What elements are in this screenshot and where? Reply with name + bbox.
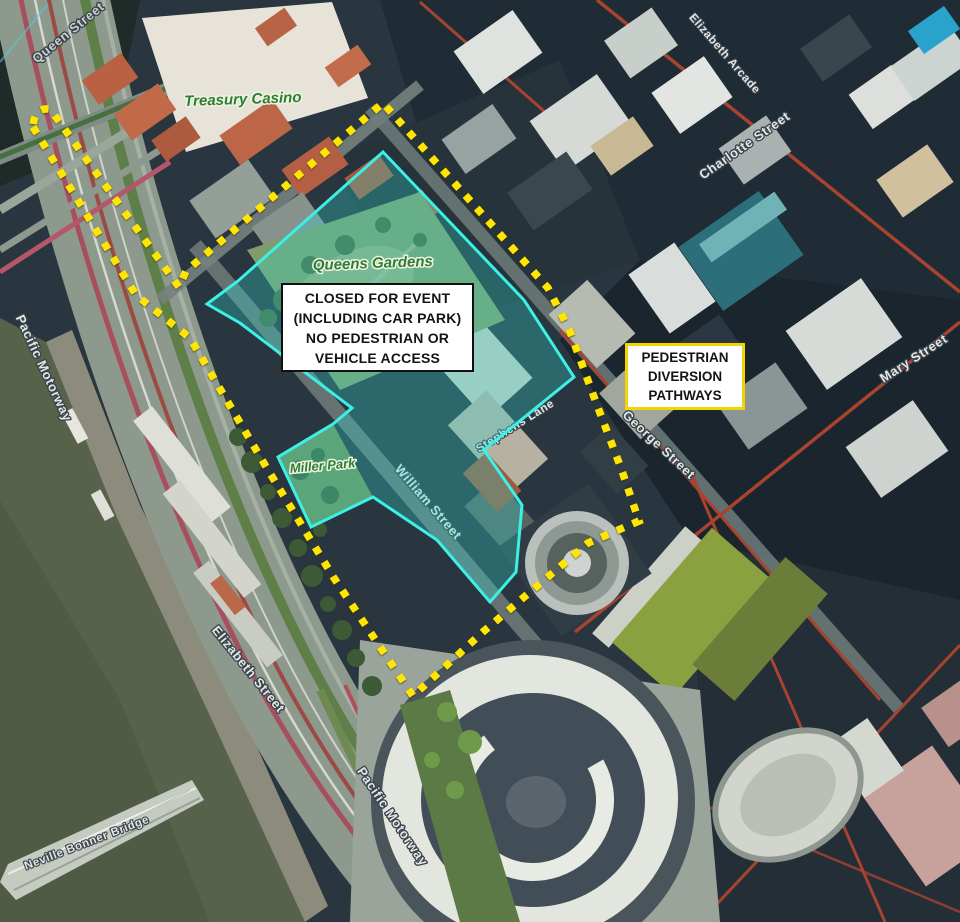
event-closure-map: William Street Stephens Lane Queen Stree… <box>0 0 960 922</box>
diversion-callout-line: DIVERSION <box>648 367 722 386</box>
diversion-callout: PEDESTRIAN DIVERSION PATHWAYS <box>625 343 745 410</box>
closed-area-callout: CLOSED FOR EVENT (INCLUDING CAR PARK) NO… <box>281 283 474 372</box>
aerial-basemap: William Street Stephens Lane Queen Stree… <box>0 0 960 922</box>
closed-area-callout-line: (INCLUDING CAR PARK) <box>294 308 462 328</box>
closed-area-callout-line: VEHICLE ACCESS <box>315 348 440 368</box>
closed-area-callout-line: NO PEDESTRIAN OR <box>306 328 449 348</box>
diversion-callout-line: PATHWAYS <box>648 386 721 405</box>
closed-area-callout-line: CLOSED FOR EVENT <box>305 288 451 308</box>
diversion-callout-line: PEDESTRIAN <box>641 348 728 367</box>
